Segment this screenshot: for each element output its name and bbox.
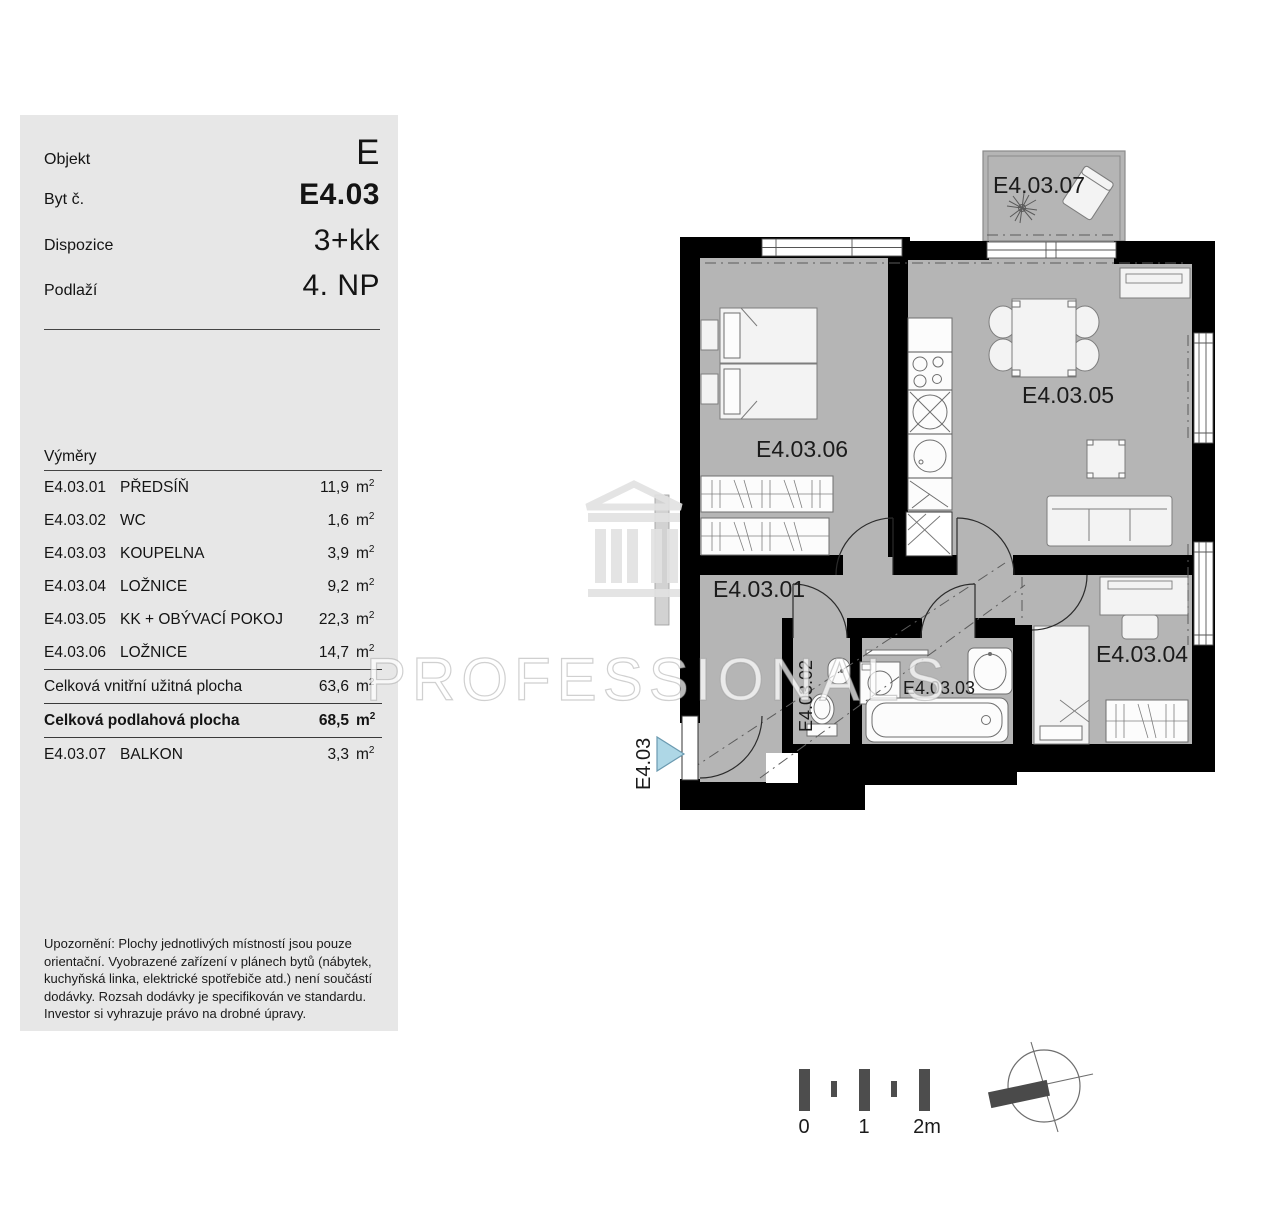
scale-0: 0 bbox=[798, 1116, 809, 1138]
area-row-03: E4.03.03 KOUPELNA 3,9 m2 bbox=[44, 537, 382, 570]
adjacent-wall bbox=[655, 495, 669, 625]
room-area: 9,2 bbox=[311, 578, 349, 596]
room-code: E4.03.01 bbox=[44, 479, 120, 497]
room-code: E4.03.06 bbox=[44, 644, 120, 662]
area-row-05: E4.03.05 KK + OBÝVACÍ POKOJ 22,3 m2 bbox=[44, 603, 382, 636]
room-name: KK + OBÝVACÍ POKOJ bbox=[120, 611, 311, 629]
room-code: E4.03.03 bbox=[44, 545, 120, 563]
room-code: E4.03.05 bbox=[44, 611, 120, 629]
room-name: BALKON bbox=[120, 746, 311, 764]
total-area: 68,5 bbox=[311, 712, 349, 730]
room-unit: m2 bbox=[356, 610, 382, 629]
byt-label: Byt č. bbox=[44, 191, 84, 209]
info-panel: Objekt E Byt č. E4.03 Dispozice 3+kk Pod… bbox=[20, 115, 398, 1031]
room-unit: m2 bbox=[356, 745, 382, 764]
room-code: E4.03.02 bbox=[44, 512, 120, 530]
objekt-value: E bbox=[356, 133, 380, 173]
bathtub-icon bbox=[866, 698, 1008, 742]
entrance-marker: E4.03 bbox=[633, 737, 684, 790]
towel-rail bbox=[866, 650, 928, 655]
pillow bbox=[724, 369, 740, 414]
room-area: 14,7 bbox=[311, 644, 349, 662]
total-area: 63,6 bbox=[311, 678, 349, 696]
areas-title: Výměry bbox=[44, 439, 382, 471]
area-row-06: E4.03.06 LOŽNICE 14,7 m2 bbox=[44, 636, 382, 670]
room-code: E4.03.04 bbox=[44, 578, 120, 596]
header-row-podlazi: Podlaží 4. NP bbox=[44, 269, 380, 303]
disclaimer-text: Upozornění: Plochy jednotlivých místnost… bbox=[44, 935, 384, 1023]
header-row-byt: Byt č. E4.03 bbox=[44, 178, 380, 212]
room-name: WC bbox=[120, 512, 311, 530]
total-unit: m2 bbox=[356, 711, 382, 730]
entrance-label: E4.03 bbox=[633, 738, 655, 790]
total-name: Celková podlahová plocha bbox=[44, 712, 311, 730]
room-label-bedroom-small: E4.03.04 bbox=[1096, 641, 1188, 667]
room-name: LOŽNICE bbox=[120, 578, 311, 596]
podlazi-value: 4. NP bbox=[302, 269, 380, 303]
room-name: LOŽNICE bbox=[120, 644, 311, 662]
wc-sink-icon bbox=[828, 658, 850, 684]
room-area: 3,3 bbox=[311, 746, 349, 764]
total-inner-area-row: Celková vnitřní užitná plocha 63,6 m2 bbox=[44, 670, 382, 704]
page: Objekt E Byt č. E4.03 Dispozice 3+kk Pod… bbox=[0, 0, 1280, 1219]
room-area: 3,9 bbox=[311, 545, 349, 563]
areas-table: Výměry E4.03.01 PŘEDSÍŇ 11,9 m2 E4.03.02… bbox=[44, 439, 382, 771]
area-row-02: E4.03.02 WC 1,6 m2 bbox=[44, 504, 382, 537]
room-unit: m2 bbox=[356, 511, 382, 530]
scale-2m: 2m bbox=[913, 1116, 941, 1138]
header-row-dispozice: Dispozice 3+kk bbox=[44, 224, 380, 258]
desk-chair bbox=[1122, 615, 1158, 639]
shaft-box bbox=[906, 512, 952, 556]
wardrobe bbox=[1106, 700, 1188, 742]
entrance-arrow-icon bbox=[657, 737, 684, 771]
shelf bbox=[1120, 268, 1190, 298]
dispozice-label: Dispozice bbox=[44, 237, 113, 255]
nightstand bbox=[701, 320, 718, 350]
room-area: 11,9 bbox=[311, 479, 349, 497]
room-unit: m2 bbox=[356, 643, 382, 662]
area-row-04: E4.03.04 LOŽNICE 9,2 m2 bbox=[44, 570, 382, 603]
nightstand bbox=[701, 374, 718, 404]
room-name: PŘEDSÍŇ bbox=[120, 479, 311, 497]
total-floor-area-row: Celková podlahová plocha 68,5 m2 bbox=[44, 704, 382, 738]
room-label-bathroom: E4.03.03 bbox=[903, 678, 975, 698]
room-label-balcony: E4.03.07 bbox=[993, 172, 1085, 198]
panel-divider bbox=[44, 329, 380, 330]
total-name: Celková vnitřní užitná plocha bbox=[44, 678, 311, 696]
total-unit: m2 bbox=[356, 677, 382, 696]
compass-icon bbox=[988, 1042, 1093, 1132]
room-label-living: E4.03.05 bbox=[1022, 382, 1114, 408]
pillow bbox=[724, 313, 740, 358]
room-label-wc: E4.03.02 bbox=[796, 660, 816, 732]
dining-table bbox=[989, 299, 1099, 377]
room-name: KOUPELNA bbox=[120, 545, 311, 563]
area-row-01: E4.03.01 PŘEDSÍŇ 11,9 m2 bbox=[44, 471, 382, 504]
dispozice-value: 3+kk bbox=[314, 224, 380, 258]
sofa bbox=[1047, 496, 1172, 546]
bed bbox=[1034, 626, 1089, 744]
podlazi-label: Podlaží bbox=[44, 282, 97, 300]
floor-plan: E4.03.06 E4.03.05 E4.03.01 E4.03.04 E4.0… bbox=[600, 120, 1280, 1160]
room-area: 22,3 bbox=[311, 611, 349, 629]
room-code: E4.03.07 bbox=[44, 746, 120, 764]
room-label-bedroom-large: E4.03.06 bbox=[756, 436, 848, 462]
room-unit: m2 bbox=[356, 577, 382, 596]
room-area: 1,6 bbox=[311, 512, 349, 530]
objekt-label: Objekt bbox=[44, 151, 90, 169]
header-row-objekt: Objekt E bbox=[44, 133, 380, 173]
balcony-row: E4.03.07 BALKON 3,3 m2 bbox=[44, 738, 382, 771]
byt-value: E4.03 bbox=[299, 178, 380, 212]
scale-bar: 0 1 2m bbox=[798, 1069, 940, 1138]
pillow bbox=[1040, 726, 1082, 740]
coffee-table bbox=[1087, 440, 1125, 478]
room-label-hall: E4.03.01 bbox=[713, 576, 805, 602]
room-unit: m2 bbox=[356, 544, 382, 563]
kitchen-counter bbox=[906, 318, 952, 556]
scale-1: 1 bbox=[858, 1116, 869, 1138]
room-unit: m2 bbox=[356, 478, 382, 497]
